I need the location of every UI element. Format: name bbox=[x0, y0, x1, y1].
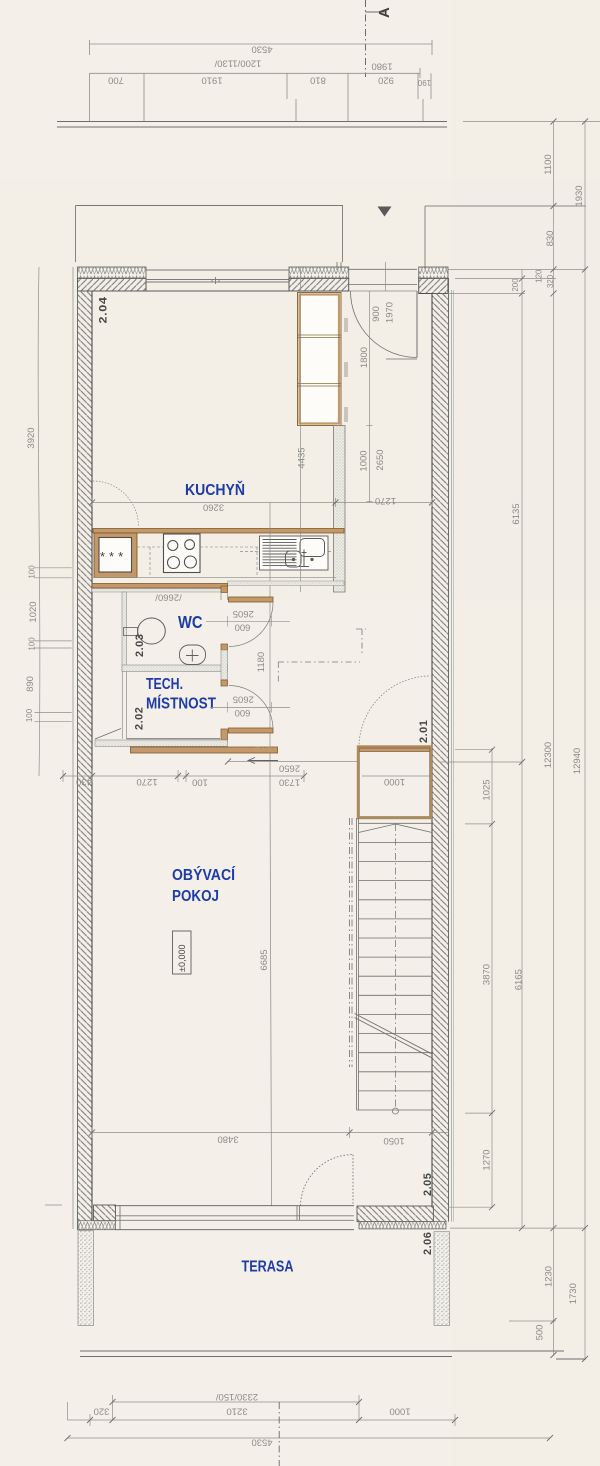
svg-text:1970: 1970 bbox=[385, 302, 396, 323]
svg-text:***: *** bbox=[100, 549, 127, 564]
svg-text:4530: 4530 bbox=[251, 1437, 272, 1448]
svg-text:2650: 2650 bbox=[279, 763, 300, 774]
svg-text:320: 320 bbox=[94, 1406, 110, 1417]
svg-text:3870: 3870 bbox=[482, 964, 493, 985]
svg-text:2605: 2605 bbox=[233, 694, 254, 705]
svg-text:1910: 1910 bbox=[201, 75, 222, 86]
svg-text:3920: 3920 bbox=[26, 427, 37, 448]
svg-text:POKOJ: POKOJ bbox=[172, 888, 219, 905]
svg-text:1020: 1020 bbox=[28, 601, 39, 622]
svg-text:4530: 4530 bbox=[251, 44, 272, 55]
svg-text:100: 100 bbox=[28, 637, 37, 651]
svg-text:2.05: 2.05 bbox=[422, 1173, 434, 1196]
svg-text:900: 900 bbox=[371, 306, 382, 322]
svg-text:200: 200 bbox=[511, 278, 520, 292]
svg-text:1270: 1270 bbox=[375, 495, 396, 506]
svg-text:890: 890 bbox=[25, 676, 36, 692]
svg-text:100: 100 bbox=[25, 708, 34, 722]
svg-text:A: A bbox=[376, 7, 393, 18]
svg-text:2605: 2605 bbox=[233, 608, 254, 619]
svg-text:6165: 6165 bbox=[514, 969, 525, 990]
svg-text:1100: 1100 bbox=[543, 154, 554, 174]
svg-text:4435: 4435 bbox=[297, 447, 308, 468]
svg-text:1025: 1025 bbox=[482, 779, 493, 800]
svg-text:600: 600 bbox=[235, 621, 251, 632]
svg-text:TERASA: TERASA bbox=[242, 1259, 294, 1276]
svg-text:2330/150/: 2330/150/ bbox=[216, 1391, 259, 1402]
svg-text:6135: 6135 bbox=[511, 503, 522, 524]
svg-text:3260: 3260 bbox=[203, 502, 224, 513]
svg-text:1980: 1980 bbox=[371, 61, 392, 72]
svg-text:6685: 6685 bbox=[259, 949, 270, 970]
svg-text:TECH.: TECH. bbox=[146, 676, 183, 693]
svg-text:100: 100 bbox=[192, 777, 208, 788]
svg-text:1000: 1000 bbox=[359, 450, 370, 471]
svg-text:KUCHYŇ: KUCHYŇ bbox=[185, 480, 245, 499]
svg-text:810: 810 bbox=[310, 75, 326, 86]
svg-text:1180: 1180 bbox=[256, 652, 267, 672]
svg-text:120: 120 bbox=[534, 269, 543, 283]
svg-text:/2660/: /2660/ bbox=[155, 592, 182, 603]
svg-text:2.06: 2.06 bbox=[422, 1232, 434, 1255]
svg-text:1000: 1000 bbox=[389, 1406, 410, 1417]
svg-text:100: 100 bbox=[28, 565, 37, 579]
svg-text:1000: 1000 bbox=[384, 776, 405, 787]
svg-text:1200/1130/: 1200/1130/ bbox=[214, 58, 261, 69]
svg-text:190: 190 bbox=[417, 78, 431, 87]
svg-text:2.01: 2.01 bbox=[418, 720, 430, 743]
svg-text:2650: 2650 bbox=[375, 449, 386, 470]
svg-text:1270: 1270 bbox=[482, 1149, 493, 1170]
svg-text:1230: 1230 bbox=[544, 1266, 555, 1287]
svg-text:12940: 12940 bbox=[572, 748, 583, 774]
svg-text:320: 320 bbox=[546, 274, 555, 288]
svg-text:430: 430 bbox=[76, 776, 92, 787]
svg-text:830: 830 bbox=[545, 231, 556, 247]
svg-text:1800: 1800 bbox=[359, 347, 370, 368]
svg-text:MÍSTNOST: MÍSTNOST bbox=[146, 694, 216, 713]
svg-text:3480: 3480 bbox=[217, 1134, 238, 1145]
svg-text:2.03: 2.03 bbox=[134, 634, 146, 657]
svg-text:±0,000: ±0,000 bbox=[177, 945, 187, 972]
svg-text:1730: 1730 bbox=[568, 1283, 579, 1304]
svg-text:2.02: 2.02 bbox=[134, 707, 146, 730]
svg-text:600: 600 bbox=[235, 707, 251, 718]
svg-text:1730: 1730 bbox=[279, 777, 300, 788]
svg-text:1050: 1050 bbox=[383, 1135, 404, 1146]
svg-text:12300: 12300 bbox=[543, 742, 554, 768]
svg-text:2.04: 2.04 bbox=[98, 296, 110, 323]
svg-text:3210: 3210 bbox=[226, 1406, 247, 1417]
svg-text:OBÝVACÍ: OBÝVACÍ bbox=[172, 865, 235, 884]
svg-text:1930: 1930 bbox=[574, 185, 585, 206]
svg-text:500: 500 bbox=[535, 1325, 546, 1341]
svg-text:WC: WC bbox=[178, 612, 203, 632]
svg-text:1270: 1270 bbox=[136, 776, 157, 787]
svg-text:920: 920 bbox=[378, 75, 394, 86]
svg-text:700: 700 bbox=[108, 75, 124, 86]
